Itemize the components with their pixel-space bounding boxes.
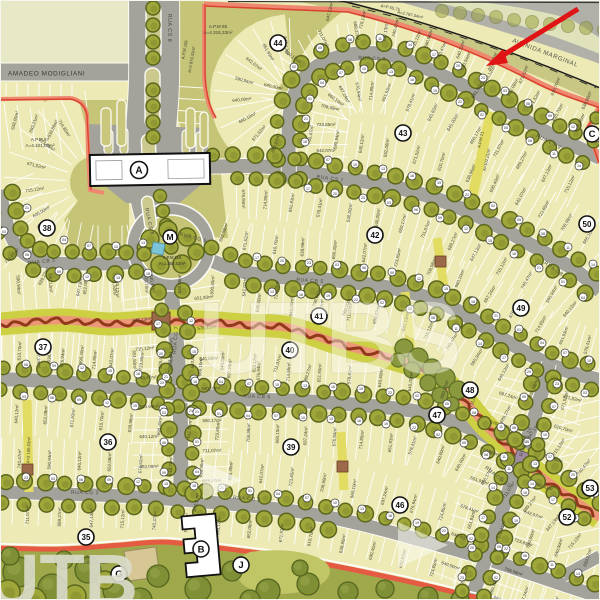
svg-text:638,96m²: 638,96m²	[300, 237, 306, 257]
svg-text:20: 20	[159, 352, 163, 356]
svg-text:19: 19	[415, 521, 419, 525]
svg-text:17: 17	[306, 187, 310, 191]
svg-text:23: 23	[24, 476, 28, 480]
svg-text:07: 07	[339, 71, 343, 75]
svg-text:07: 07	[563, 351, 567, 355]
svg-text:740,47m²: 740,47m²	[17, 449, 23, 469]
svg-text:48: 48	[466, 386, 475, 395]
svg-text:A.P.M 116: A.P.M 116	[163, 255, 182, 260]
svg-text:21: 21	[195, 410, 199, 414]
svg-text:44: 44	[274, 39, 283, 48]
svg-text:12: 12	[571, 125, 575, 129]
svg-text:42: 42	[371, 231, 380, 240]
svg-text:11: 11	[499, 425, 503, 429]
svg-text:04: 04	[581, 296, 585, 300]
svg-text:01: 01	[517, 328, 521, 332]
svg-text:10: 10	[362, 67, 366, 71]
svg-text:14: 14	[591, 263, 595, 267]
svg-text:09: 09	[438, 216, 442, 220]
svg-text:37: 37	[39, 343, 48, 352]
svg-text:15: 15	[164, 482, 168, 486]
svg-text:01: 01	[561, 280, 565, 284]
svg-text:11: 11	[566, 246, 570, 250]
svg-text:46: 46	[396, 501, 405, 510]
svg-text:21: 21	[25, 206, 29, 210]
svg-text:20: 20	[456, 64, 460, 68]
svg-text:16: 16	[523, 491, 527, 495]
svg-text:RUA CG 2: RUA CG 2	[71, 490, 99, 496]
svg-text:13: 13	[141, 241, 145, 245]
svg-text:22: 22	[412, 426, 416, 430]
svg-text:16: 16	[357, 419, 361, 423]
svg-text:06: 06	[50, 396, 54, 400]
svg-text:652,08m²: 652,08m²	[107, 452, 113, 472]
svg-text:03: 03	[51, 477, 55, 481]
svg-text:AMADEO MODIGLIANI: AMADEO MODIGLIANI	[8, 71, 85, 78]
svg-text:19: 19	[437, 181, 441, 185]
svg-text:18: 18	[471, 300, 475, 304]
svg-text:09: 09	[107, 478, 111, 482]
svg-text:03: 03	[583, 391, 587, 395]
svg-text:01: 01	[248, 489, 252, 493]
svg-text:689,27m²: 689,27m²	[57, 507, 63, 527]
svg-text:36: 36	[104, 438, 113, 447]
svg-text:RUA CS 8: RUA CS 8	[166, 14, 172, 42]
svg-text:647,13m²: 647,13m²	[89, 508, 95, 528]
svg-text:18: 18	[136, 372, 140, 376]
svg-text:610,70m²: 610,70m²	[17, 341, 23, 361]
svg-text:23: 23	[555, 382, 559, 386]
svg-text:660,10m²: 660,10m²	[275, 424, 281, 444]
svg-text:09: 09	[57, 270, 61, 274]
svg-text:03: 03	[162, 411, 166, 415]
svg-text:52: 52	[563, 513, 572, 522]
svg-text:07: 07	[274, 414, 278, 418]
svg-text:09: 09	[162, 471, 166, 475]
svg-text:711,07m²: 711,07m²	[203, 448, 222, 453]
svg-text:02: 02	[292, 65, 296, 69]
svg-text:15: 15	[192, 350, 196, 354]
svg-text:A=4.316,33m²: A=4.316,33m²	[204, 30, 233, 35]
svg-text:06: 06	[362, 266, 366, 270]
svg-text:711,07m²: 711,07m²	[25, 505, 31, 524]
svg-text:49: 49	[517, 304, 526, 313]
svg-text:14: 14	[576, 572, 580, 576]
svg-text:590,94m²: 590,94m²	[139, 404, 159, 409]
svg-text:13: 13	[533, 462, 537, 466]
svg-text:13: 13	[360, 507, 364, 511]
svg-text:15: 15	[116, 276, 120, 280]
svg-text:708,98m²: 708,98m²	[246, 423, 252, 443]
svg-text:07: 07	[326, 158, 330, 162]
svg-text:14: 14	[491, 486, 495, 490]
svg-text:16: 16	[410, 174, 414, 178]
svg-text:02: 02	[480, 113, 484, 117]
svg-text:21: 21	[189, 409, 193, 413]
svg-text:04: 04	[320, 81, 324, 85]
svg-text:07: 07	[87, 244, 91, 248]
svg-text:A.P.M 87: A.P.M 87	[31, 137, 50, 142]
svg-text:12: 12	[105, 401, 109, 405]
svg-text:13: 13	[381, 167, 385, 171]
svg-text:08: 08	[484, 453, 488, 457]
svg-text:09: 09	[548, 114, 552, 118]
svg-text:04: 04	[246, 414, 250, 418]
svg-text:22: 22	[504, 547, 508, 551]
svg-text:21: 21	[304, 117, 308, 121]
svg-text:14: 14	[408, 43, 412, 47]
svg-text:06: 06	[25, 253, 29, 257]
svg-text:A: A	[135, 166, 142, 177]
svg-text:47: 47	[433, 411, 442, 420]
svg-text:640,12m²: 640,12m²	[77, 451, 83, 471]
svg-text:B: B	[198, 544, 205, 555]
svg-text:676,94m²: 676,94m²	[241, 189, 246, 209]
svg-text:14: 14	[478, 342, 482, 346]
svg-text:C: C	[589, 129, 596, 140]
svg-text:02: 02	[491, 204, 495, 208]
svg-text:20: 20	[280, 259, 284, 263]
svg-text:04: 04	[276, 492, 280, 496]
svg-text:18: 18	[303, 140, 307, 144]
svg-text:15: 15	[133, 404, 137, 408]
svg-text:19: 19	[384, 422, 388, 426]
svg-text:08: 08	[472, 411, 476, 415]
svg-text:18: 18	[192, 484, 196, 488]
svg-text:20: 20	[470, 546, 474, 550]
svg-text:10: 10	[543, 433, 547, 437]
svg-text:651,93m²: 651,93m²	[132, 350, 138, 370]
svg-text:03: 03	[335, 263, 339, 267]
svg-text:06: 06	[79, 478, 83, 482]
svg-text:01: 01	[308, 97, 312, 101]
svg-text:640,12m²: 640,12m²	[139, 434, 159, 439]
svg-text:04: 04	[540, 341, 544, 345]
svg-text:08: 08	[523, 554, 527, 558]
svg-text:06: 06	[24, 363, 28, 367]
svg-text:08: 08	[541, 232, 545, 236]
svg-text:06: 06	[414, 208, 418, 212]
svg-text:22: 22	[458, 100, 462, 104]
svg-text:652,08m²: 652,08m²	[139, 464, 159, 469]
svg-text:03: 03	[2, 230, 6, 234]
svg-text:05: 05	[517, 218, 521, 222]
svg-text:13: 13	[329, 417, 333, 421]
svg-text:14: 14	[530, 482, 534, 486]
svg-text:J: J	[238, 560, 243, 571]
svg-text:02: 02	[469, 537, 473, 541]
svg-text:UTBS: UTBS	[198, 281, 460, 395]
svg-text:43: 43	[399, 129, 408, 138]
svg-text:19: 19	[514, 519, 518, 523]
svg-text:03: 03	[387, 201, 391, 205]
svg-text:38: 38	[43, 224, 52, 233]
svg-text:12: 12	[80, 366, 84, 370]
svg-text:17: 17	[432, 53, 436, 57]
svg-text:A.P.M 85: A.P.M 85	[209, 24, 228, 29]
svg-text:18: 18	[193, 380, 197, 384]
svg-text:10: 10	[587, 359, 591, 363]
svg-text:23: 23	[481, 76, 485, 80]
svg-text:11: 11	[550, 563, 554, 567]
svg-text:13: 13	[389, 70, 393, 74]
svg-text:02: 02	[436, 433, 440, 437]
svg-text:04: 04	[195, 470, 199, 474]
svg-text:02: 02	[494, 576, 498, 580]
svg-text:06: 06	[526, 102, 530, 106]
svg-text:09: 09	[77, 398, 81, 402]
svg-text:22: 22	[442, 529, 446, 533]
svg-text:21: 21	[164, 375, 168, 379]
svg-text:17: 17	[481, 516, 485, 520]
svg-text:10: 10	[114, 245, 118, 249]
svg-text:23: 23	[460, 576, 464, 580]
svg-text:05: 05	[462, 441, 466, 445]
svg-text:A=4.421,03m²: A=4.421,03m²	[26, 143, 55, 148]
svg-text:UTB: UTB	[0, 539, 138, 600]
svg-text:638,96m²: 638,96m²	[177, 274, 182, 294]
svg-text:21: 21	[494, 314, 498, 318]
svg-text:M: M	[166, 232, 173, 242]
svg-text:05: 05	[318, 46, 322, 50]
svg-text:10: 10	[301, 416, 305, 420]
svg-text:15: 15	[488, 239, 492, 243]
svg-text:18: 18	[512, 252, 516, 256]
svg-text:39: 39	[287, 443, 296, 452]
svg-text:20: 20	[333, 192, 337, 196]
svg-text:17: 17	[551, 498, 555, 502]
svg-text:05: 05	[445, 402, 449, 406]
svg-text:15: 15	[108, 369, 112, 373]
svg-text:640,12m²: 640,12m²	[14, 404, 20, 424]
svg-text:12: 12	[85, 275, 89, 279]
svg-text:16: 16	[410, 78, 414, 82]
svg-text:03: 03	[22, 395, 26, 399]
svg-text:21: 21	[537, 266, 541, 270]
svg-text:723,65m²: 723,65m²	[316, 122, 336, 127]
svg-text:04: 04	[62, 238, 66, 242]
svg-text:17: 17	[156, 322, 160, 326]
svg-text:20: 20	[571, 473, 575, 477]
svg-text:650,17m²: 650,17m²	[202, 418, 222, 423]
svg-text:23: 23	[361, 196, 365, 200]
svg-text:590,94m²: 590,94m²	[47, 450, 53, 470]
svg-text:17: 17	[502, 356, 506, 360]
svg-text:20: 20	[527, 370, 531, 374]
svg-text:08: 08	[528, 139, 532, 143]
svg-text:11: 11	[502, 455, 506, 459]
svg-text:53: 53	[586, 484, 595, 493]
svg-text:05: 05	[522, 395, 526, 399]
svg-text:05: 05	[497, 545, 501, 549]
svg-text:06: 06	[162, 441, 166, 445]
svg-text:17: 17	[255, 256, 259, 260]
svg-text:03: 03	[503, 89, 507, 93]
svg-text:05: 05	[504, 126, 508, 130]
svg-text:09: 09	[52, 364, 56, 368]
svg-text:07: 07	[552, 405, 556, 409]
svg-text:12: 12	[136, 480, 140, 484]
svg-text:16: 16	[388, 514, 392, 518]
svg-text:652,08m²: 652,08m²	[43, 405, 49, 425]
svg-text:07: 07	[305, 496, 309, 500]
svg-text:01: 01	[217, 412, 221, 416]
svg-text:10: 10	[333, 501, 337, 505]
svg-text:14: 14	[577, 164, 581, 168]
svg-text:23: 23	[160, 381, 164, 385]
svg-text:11: 11	[507, 467, 511, 471]
svg-text:18: 18	[146, 272, 150, 276]
svg-text:10: 10	[353, 163, 357, 167]
svg-text:22: 22	[465, 193, 469, 197]
svg-text:01: 01	[195, 440, 199, 444]
svg-text:12: 12	[189, 319, 193, 323]
svg-text:A=1.858,52m²: A=1.858,52m²	[159, 261, 186, 266]
svg-text:11: 11	[552, 152, 556, 156]
svg-text:09: 09	[390, 271, 394, 275]
svg-text:19: 19	[433, 89, 437, 93]
svg-text:12: 12	[464, 227, 468, 231]
svg-text:11: 11	[378, 37, 382, 41]
svg-text:17: 17	[548, 455, 552, 459]
svg-text:50: 50	[583, 220, 592, 229]
svg-text:A=2 155,03m²: A=2 155,03m²	[26, 436, 32, 463]
svg-text:08: 08	[512, 426, 516, 430]
svg-text:23: 23	[307, 261, 311, 265]
svg-text:08: 08	[348, 38, 352, 42]
